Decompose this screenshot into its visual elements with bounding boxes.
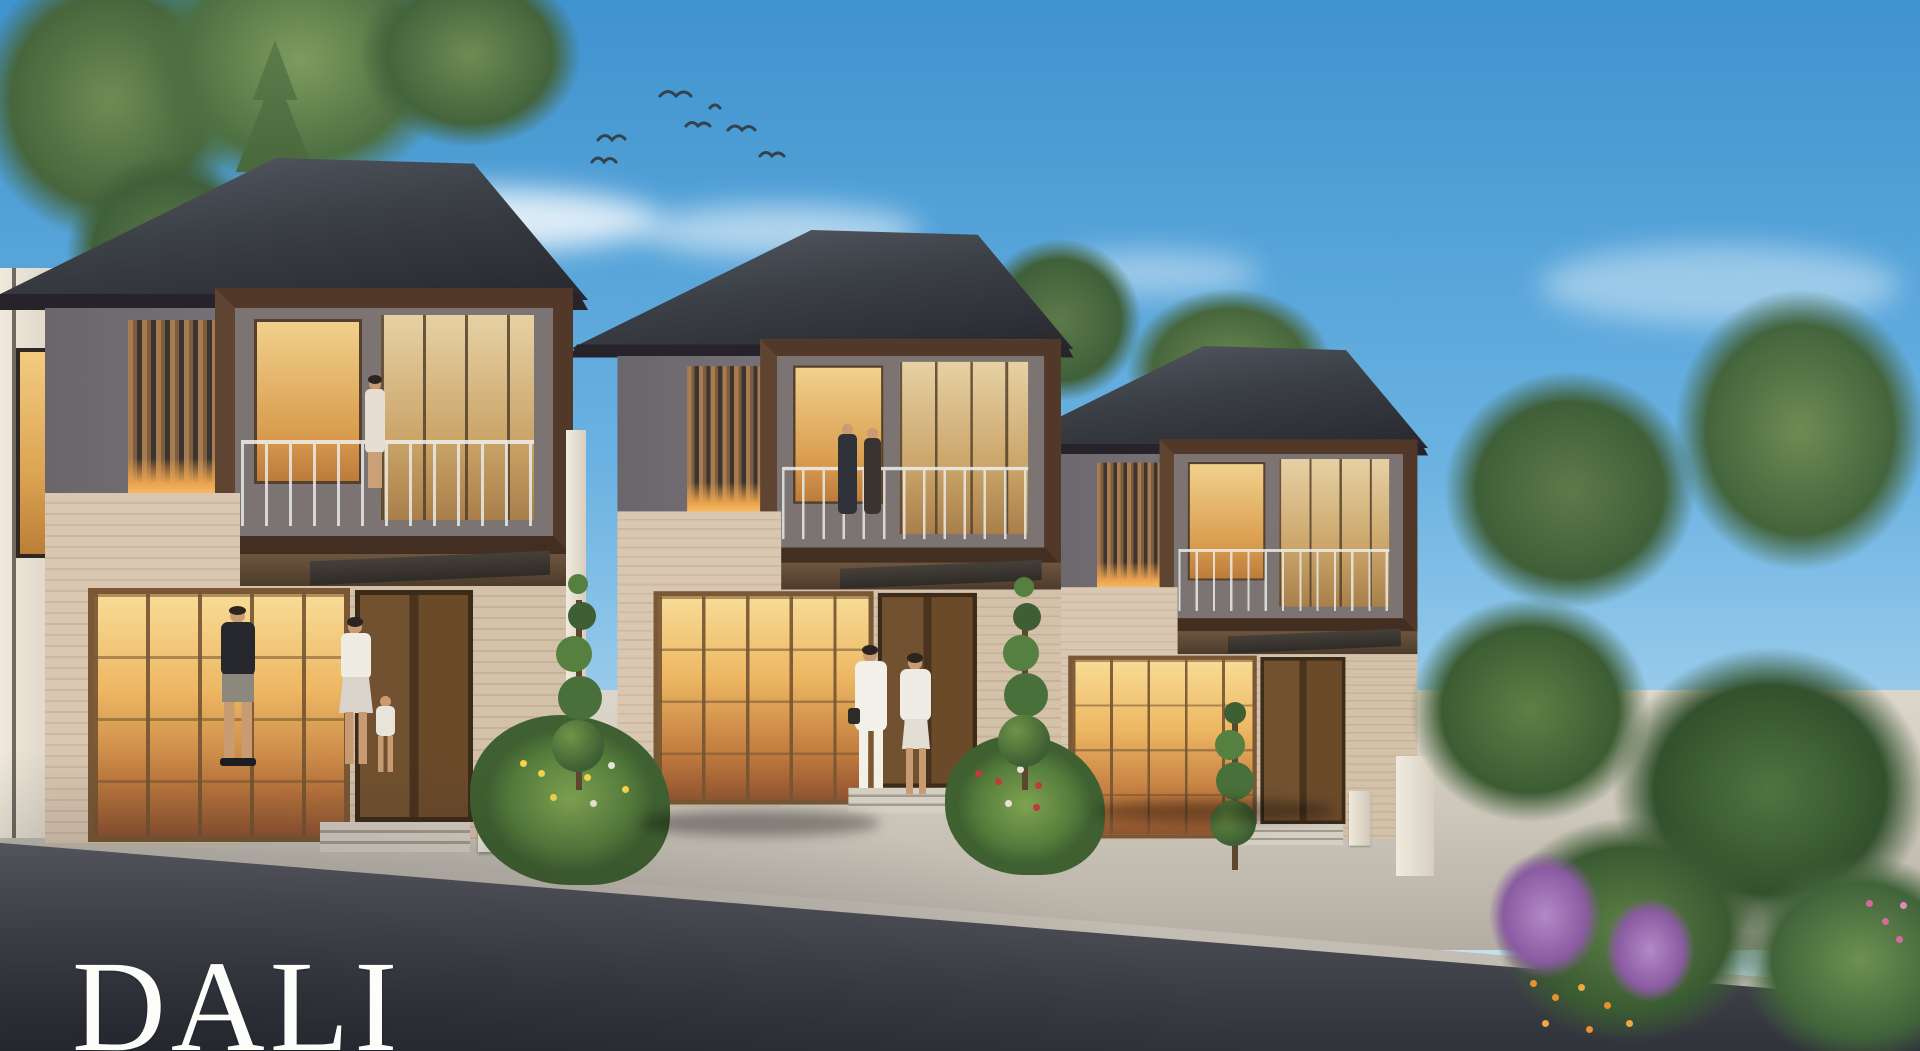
flying-birds-icon [590,78,820,198]
car-shadow [1095,800,1335,822]
shoes [220,758,256,766]
legs [378,736,393,772]
white-top [900,669,931,721]
dark-outfit [838,434,857,514]
car-shadow [640,810,880,836]
spiral-topiary [998,715,1050,767]
box-balcony [215,288,573,556]
woman-in-white-1 [850,648,892,796]
hair [862,645,878,655]
hair [368,375,382,384]
dark-outfit [864,438,881,514]
child-walking [372,696,398,776]
balcony-man [836,424,860,516]
architectural-render: DALI [0,0,1920,1051]
handbag [848,708,860,724]
red-flowers [975,770,982,777]
project-wordmark: DALI [72,942,402,1051]
child-shirt [376,706,395,736]
gate-post [1349,791,1371,846]
skirt [339,677,373,713]
dress [365,389,385,453]
hip-roof [570,230,1074,349]
pink-flowers [1866,900,1873,907]
topiary-trunk [1232,720,1238,870]
orange-flowers [1530,980,1537,987]
woman-walking [336,620,376,770]
hair [229,606,246,615]
balcony-woman [362,378,388,490]
legs [224,702,252,760]
box-balcony [1160,440,1418,633]
hair [347,617,363,627]
purple-flower-bush [1590,880,1710,1020]
balcony-railing [1179,549,1390,611]
legs [368,452,382,488]
shorts [222,674,254,702]
white-top [341,633,371,679]
trousers [859,730,883,788]
legs [906,748,926,794]
ground-floor-window [654,591,874,804]
box-balcony [760,339,1061,564]
black-shirt [221,622,255,676]
man-walking [216,608,260,766]
entry-steps [320,822,470,852]
hip-roof [0,158,588,300]
yellow-flowers [520,760,527,767]
legs [345,712,367,764]
woman-in-white-2 [896,656,936,796]
skirt [902,719,930,749]
spiral-topiary [552,720,604,772]
timber-entry-door [1260,657,1345,824]
balcony-railing [782,467,1028,539]
balcony-woman-2 [862,428,884,516]
hair [907,653,923,663]
